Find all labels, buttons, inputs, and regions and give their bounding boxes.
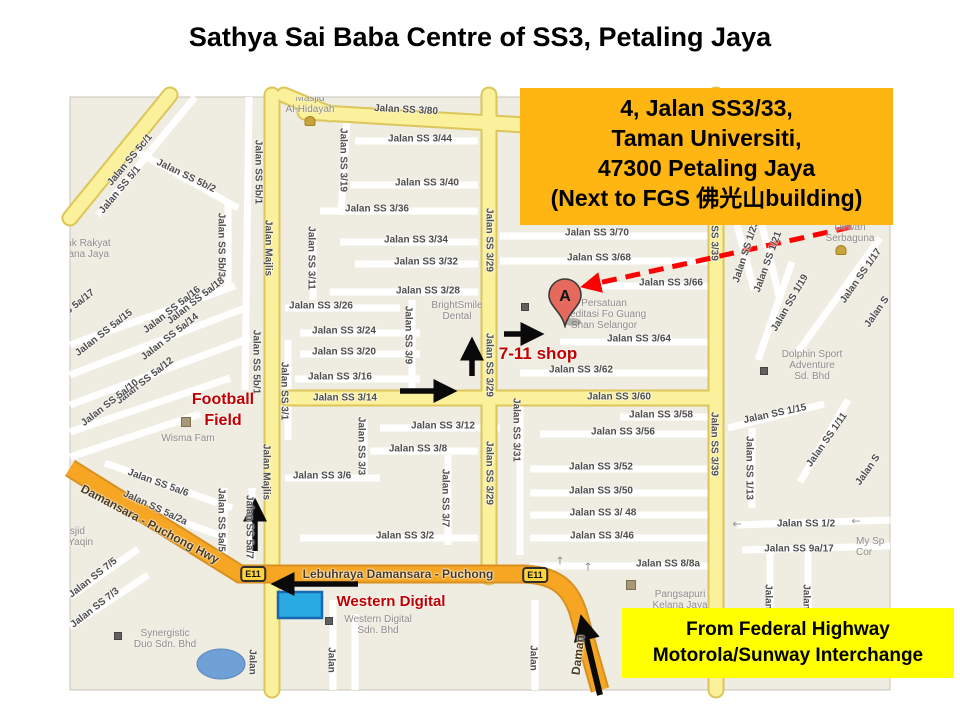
street-label: Jalan SS 3/66 bbox=[639, 278, 703, 289]
street-label: Jalan Majlis bbox=[261, 444, 272, 500]
dot-icon bbox=[114, 632, 122, 640]
street-label: Jalan SS 3/40 bbox=[395, 178, 459, 189]
street-label: Jalan SS 3/70 bbox=[565, 228, 629, 239]
street-label: SS 3/39 bbox=[709, 225, 720, 261]
street-label: Jalan bbox=[763, 584, 774, 610]
street-label: Jalan SS 3/68 bbox=[567, 253, 631, 264]
e11-route-shield: E11 bbox=[240, 566, 266, 582]
street-label: Jalan SS 3/19 bbox=[338, 128, 349, 192]
street-label: Jalan SS 1/21 bbox=[752, 230, 784, 294]
street-label: Jalan SS 3/32 bbox=[394, 257, 458, 268]
street-label: Damansara - Puchong Hwy bbox=[78, 482, 221, 567]
street-label: Jalan SS 3/52 bbox=[569, 462, 633, 473]
street-label: Jalan SS 3/20 bbox=[312, 347, 376, 358]
street-label: Jalan SS 5a/5 bbox=[216, 488, 227, 552]
street-label: Jalan SS 3/8 bbox=[389, 444, 447, 455]
street-label: Jalan S bbox=[862, 294, 890, 329]
svg-text:A: A bbox=[559, 288, 571, 305]
slide-canvas: Sathya Sai Baba Centre of SS3, Petaling … bbox=[0, 0, 960, 720]
e11-route-shield: E11 bbox=[522, 567, 548, 583]
address-line: Taman Universiti, bbox=[520, 123, 893, 153]
street-label: Jalan bbox=[247, 649, 258, 675]
street-label: Jalan SS 5b/1 bbox=[251, 330, 262, 394]
street-label: Jalan SS 3/31 bbox=[511, 398, 522, 462]
street-label: Jalan bbox=[326, 647, 337, 673]
dot-icon bbox=[325, 617, 333, 625]
oneway-arrow-icon: ↑ bbox=[555, 555, 564, 568]
street-label: Jalan SS 3/29 bbox=[484, 208, 495, 272]
street-label: Jalan SS 3/7 bbox=[440, 469, 451, 527]
street-label: Jalan SS 5b/1 bbox=[253, 140, 264, 204]
street-label: Jalan bbox=[801, 584, 812, 610]
poi-label: DewanSerbaguna bbox=[826, 222, 875, 244]
poi-label: MasjidAl-Yaqin bbox=[70, 526, 93, 548]
address-line: 47300 Petaling Jaya bbox=[520, 153, 893, 183]
street-label: Jalan SS 5a/17 bbox=[70, 287, 97, 338]
street-label: Jalan SS 3/64 bbox=[607, 334, 671, 345]
street-label: Jalan bbox=[528, 645, 539, 671]
oneway-arrow-icon: ← bbox=[732, 518, 741, 531]
street-label: Daman bbox=[569, 634, 588, 675]
street-label: Jalan SS 3/16 bbox=[308, 372, 372, 383]
building-icon bbox=[181, 417, 191, 427]
address-line: (Next to FGS 佛光山building) bbox=[520, 183, 893, 213]
street-label: Jalan SS 3/ 48 bbox=[570, 508, 637, 519]
oneway-arrow-icon: ← bbox=[851, 515, 860, 528]
street-label: Jalan SS 3/12 bbox=[411, 421, 475, 432]
street-label: Jalan SS 1/11 bbox=[804, 411, 849, 469]
street-label: Jalan SS 3/39 bbox=[709, 412, 720, 476]
poi-label: MasjidAl-Hidayah bbox=[286, 97, 335, 115]
street-label: Jalan SS 3/56 bbox=[591, 427, 655, 438]
mosque-icon bbox=[836, 245, 847, 255]
street-label: Jalan SS 1/17 bbox=[838, 247, 884, 306]
street-label: Jalan Majlis bbox=[263, 220, 274, 276]
highway-note-line: From Federal Highway bbox=[622, 617, 954, 643]
street-label: Jalan SS 3/80 bbox=[374, 103, 438, 117]
street-label: Jalan SS 3/44 bbox=[388, 134, 452, 145]
street-label: Jalan SS 3/14 bbox=[313, 393, 377, 404]
oneway-arrow-icon: ↑ bbox=[583, 561, 592, 574]
street-label: Jalan SS 3/36 bbox=[345, 204, 409, 215]
street-label: Jalan SS 1/19 bbox=[769, 273, 810, 334]
highway-note-line: Motorola/Sunway Interchange bbox=[622, 643, 954, 669]
poi-label: Bank RakyatKelana Jaya bbox=[70, 238, 111, 260]
mosque-icon bbox=[305, 116, 316, 126]
street-label: Jalan SS 3/60 bbox=[587, 392, 651, 403]
street-label: Jalan S bbox=[853, 452, 882, 487]
street-label: Jalan SS 3/2 bbox=[376, 531, 434, 542]
street-label: Jalan SS 5b/2 bbox=[155, 157, 218, 195]
map-marker-a[interactable]: A bbox=[546, 278, 584, 333]
red-annotation: Western Digital bbox=[337, 592, 446, 612]
building-icon bbox=[626, 580, 636, 590]
address-line: 4, Jalan SS3/33, bbox=[520, 93, 893, 123]
street-label: Jalan SS 3/50 bbox=[569, 486, 633, 497]
address-callout-box: 4, Jalan SS3/33, Taman Universiti, 47300… bbox=[520, 88, 893, 225]
street-label: Jalan SS 5b/3 bbox=[216, 213, 227, 277]
street-label: Jalan SS 3/9 bbox=[403, 306, 414, 364]
poi-label: SynergisticDuo Sdn. Bhd bbox=[134, 628, 196, 650]
street-label: Lebuhraya Damansara - Puchong bbox=[303, 567, 494, 581]
street-label: Jalan SS 5a/15 bbox=[73, 307, 135, 358]
street-label: Jalan SS 3/46 bbox=[570, 531, 634, 542]
dot-icon bbox=[760, 367, 768, 375]
street-label: Jalan SS 9a/17 bbox=[764, 544, 834, 555]
street-label: Jalan SS 3/6 bbox=[293, 471, 351, 482]
highway-note-box: From Federal Highway Motorola/Sunway Int… bbox=[622, 608, 954, 678]
street-label: Jalan SS 3/62 bbox=[549, 365, 613, 376]
street-label: Jalan SS 5a/7 bbox=[244, 495, 255, 559]
street-label: Jalan SS 3/58 bbox=[629, 410, 693, 421]
street-label: Jalan SS 3/28 bbox=[396, 286, 460, 297]
street-label: Jalan SS 8/8a bbox=[636, 559, 700, 570]
street-label: Jalan SS 3/24 bbox=[312, 326, 376, 337]
street-label: Jalan SS 3/3 bbox=[356, 417, 367, 475]
street-label: Jalan SS 3/11 bbox=[306, 226, 317, 289]
street-label: Jalan SS 3/1 bbox=[279, 362, 290, 420]
poi-label: Wisma Fam bbox=[161, 433, 214, 444]
street-label: Jalan SS 3/29 bbox=[484, 333, 495, 397]
poi-label: BrightSmileDental bbox=[431, 300, 482, 322]
street-label: Jalan SS 1/13 bbox=[744, 436, 755, 500]
street-label: Jalan SS 1/2 bbox=[777, 519, 835, 530]
dot-icon bbox=[521, 303, 529, 311]
poi-label: Western DigitalSdn. Bhd bbox=[344, 614, 412, 636]
street-label: Jalan SS 3/29 bbox=[484, 441, 495, 505]
poi-label: Dolphin SportAdventureSd. Bhd bbox=[782, 349, 843, 382]
street-label: Jalan SS 3/26 bbox=[289, 301, 353, 312]
red-annotation: FootballField bbox=[192, 390, 254, 432]
street-label: Jalan SS 1/15 bbox=[743, 402, 808, 426]
street-label: Jalan SS 3/34 bbox=[384, 235, 448, 246]
street-label: Jalan SS 5a/10 bbox=[79, 377, 141, 428]
poi-label: My SpCor bbox=[856, 536, 884, 558]
red-annotation: 7-11 shop bbox=[499, 343, 577, 365]
